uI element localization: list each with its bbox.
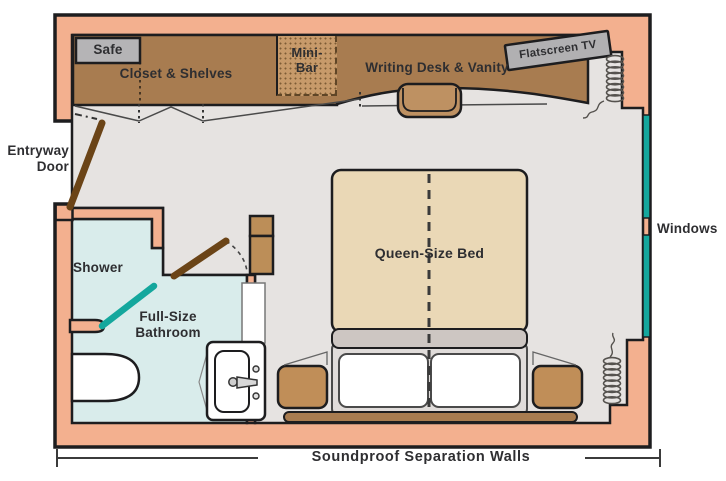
sink-faucet: [229, 378, 237, 386]
writing-desk-label: Writing Desk & Vanity: [352, 60, 522, 76]
sink-knob-top: [253, 366, 259, 372]
storage-cabinet-top: [250, 216, 273, 236]
headboard: [284, 412, 577, 422]
pillow-right: [431, 354, 520, 407]
desk-chair: [398, 84, 461, 117]
shower-label: Shower: [58, 260, 138, 276]
minibar-label-line2: Bar: [277, 61, 337, 76]
stateroom-floorplan: Safe Closet & Shelves Mini- Bar Writing …: [0, 0, 726, 481]
pillow-left: [339, 354, 428, 407]
window-strip-top: [643, 115, 650, 218]
entryway-label-line1: Entryway: [0, 143, 69, 159]
sink-knob-bottom: [253, 393, 259, 399]
windows-label: Windows: [657, 221, 726, 237]
entryway-door-label: Entryway Door: [0, 143, 69, 176]
minibar-label-line1: Mini-: [277, 46, 337, 61]
toilet: [72, 354, 139, 401]
bathroom-label-line1: Full-Size: [108, 309, 228, 325]
soundproof-walls-label: Soundproof Separation Walls: [258, 449, 584, 467]
entryway-label-line2: Door: [0, 159, 69, 175]
minibar-label: Mini- Bar: [277, 46, 337, 76]
vanity-panel: [242, 283, 265, 343]
queen-bed-label: Queen-Size Bed: [332, 245, 527, 262]
safe-label: Safe: [76, 42, 140, 58]
storage-cabinet-bottom: [250, 236, 273, 274]
nightstand-right: [533, 366, 582, 408]
bathroom-label: Full-Size Bathroom: [108, 309, 228, 342]
nightstand-left: [278, 366, 327, 408]
bathroom-label-line2: Bathroom: [108, 325, 228, 341]
window-strip-bottom: [643, 235, 650, 337]
closet-label: Closet & Shelves: [96, 66, 256, 82]
